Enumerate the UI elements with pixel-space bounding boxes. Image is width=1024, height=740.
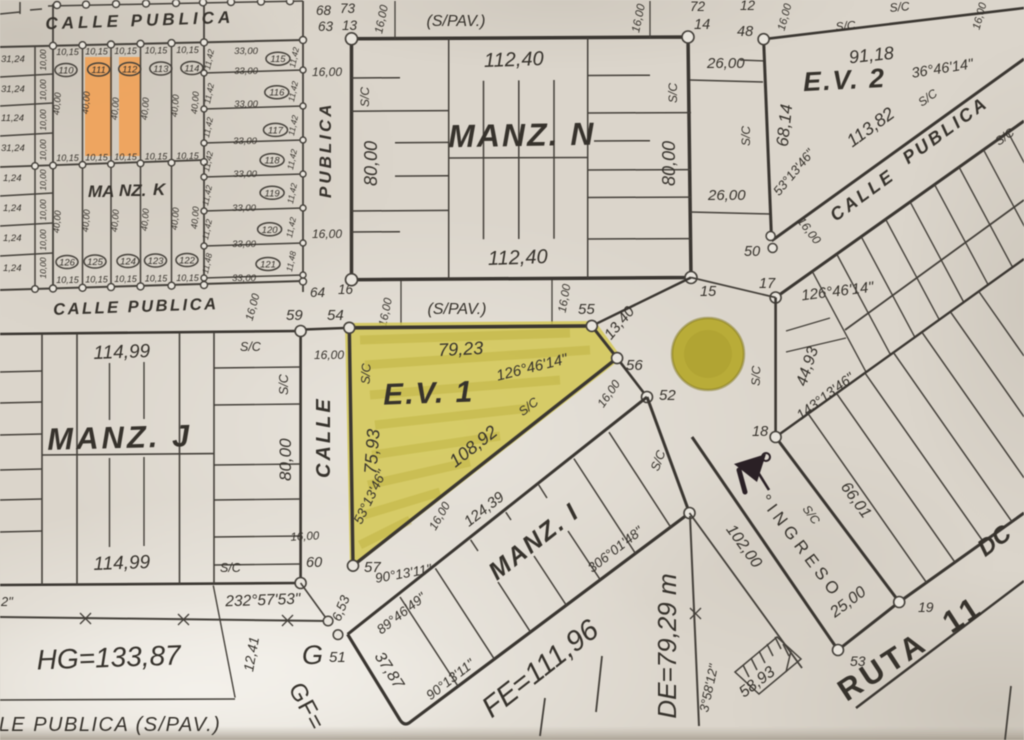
svg-text:13: 13 [342,18,358,33]
svg-text:HG=133,87: HG=133,87 [36,639,182,675]
svg-text:64: 64 [310,285,325,300]
svg-text:14: 14 [694,17,710,33]
svg-text:33,00: 33,00 [234,99,258,110]
svg-text:40,00: 40,00 [139,97,151,120]
svg-text:G: G [302,640,323,670]
svg-text:12: 12 [740,0,756,13]
svg-text:E.V. 1: E.V. 1 [383,375,475,411]
svg-text:NZ.: NZ. [119,181,146,200]
svg-text:18: 18 [752,424,768,440]
svg-text:1,24: 1,24 [3,173,22,184]
svg-text:59: 59 [286,307,303,324]
svg-text:10,15: 10,15 [85,47,109,57]
svg-text:115: 115 [270,54,286,65]
svg-text:117: 117 [268,125,284,136]
svg-text:16,00: 16,00 [290,530,320,544]
svg-text:2": 2" [0,594,14,609]
svg-text:33,00: 33,00 [234,46,258,57]
svg-text:LE PUBLICA (S/PAV.): LE PUBLICA (S/PAV.) [0,714,221,736]
svg-text:S/C: S/C [889,0,911,15]
svg-text:10,15: 10,15 [56,275,80,285]
svg-text:122: 122 [179,256,196,267]
svg-text:S/C: S/C [277,373,291,395]
svg-text:10,00: 10,00 [38,109,48,131]
svg-text:75,93: 75,93 [360,428,383,474]
svg-text:40,00: 40,00 [139,208,151,231]
svg-text:16,00: 16,00 [312,65,342,79]
svg-text:116: 116 [269,88,285,99]
svg-text:S/C: S/C [749,365,764,386]
svg-text:33,00: 33,00 [232,239,256,250]
svg-text:33,00: 33,00 [232,273,256,284]
svg-text:50: 50 [744,244,760,260]
svg-text:10,00: 10,00 [38,257,48,279]
svg-text:40,00: 40,00 [189,206,201,229]
svg-text:10,15: 10,15 [56,47,80,57]
svg-text:112,40: 112,40 [488,246,548,270]
svg-text:80,00: 80,00 [659,141,679,186]
svg-text:10,15: 10,15 [145,46,169,56]
svg-text:S/C: S/C [666,83,680,103]
svg-text:10,15: 10,15 [56,153,80,163]
svg-text:10,15: 10,15 [85,153,109,163]
svg-text:113: 113 [153,64,169,75]
svg-text:114,99: 114,99 [93,341,151,364]
svg-text:31,24: 31,24 [1,84,25,95]
svg-text:112,40: 112,40 [484,48,544,72]
svg-text:10,15: 10,15 [85,275,109,285]
svg-text:40,00: 40,00 [80,209,92,232]
svg-text:80,00: 80,00 [276,438,295,481]
svg-text:10,15: 10,15 [114,274,138,284]
svg-text:10,15: 10,15 [176,273,200,283]
svg-text:40,00: 40,00 [169,94,181,117]
svg-text:119: 119 [265,188,281,199]
svg-text:26,00: 26,00 [707,187,746,204]
svg-text:120: 120 [262,225,279,236]
svg-text:52: 52 [659,387,676,404]
svg-text:S/C: S/C [358,87,372,107]
svg-text:S/C: S/C [240,340,262,354]
svg-text:16,00: 16,00 [314,348,344,362]
svg-text:63: 63 [318,19,334,34]
svg-text:E.V. 2: E.V. 2 [802,63,887,97]
svg-text:40,00: 40,00 [80,91,92,114]
svg-text:112: 112 [122,65,138,76]
svg-text:114,99: 114,99 [93,552,151,575]
svg-text:31,24: 31,24 [1,143,25,154]
svg-text:17: 17 [759,276,776,292]
svg-text:10,15: 10,15 [176,151,200,161]
svg-text:1,24: 1,24 [3,233,22,244]
svg-text:K: K [153,180,167,199]
svg-text:57: 57 [364,559,381,576]
svg-text:26,00: 26,00 [706,55,745,72]
svg-text:15: 15 [700,284,717,300]
svg-text:114: 114 [184,64,199,75]
svg-text:232°57'53": 232°57'53" [224,591,302,611]
svg-text:(S/PAV.): (S/PAV.) [428,301,487,318]
svg-text:10,00: 10,00 [38,199,48,221]
svg-text:10,00: 10,00 [38,169,48,191]
svg-text:33,00: 33,00 [232,203,256,214]
svg-text:MA: MA [88,182,114,201]
svg-text:10,15: 10,15 [114,152,138,162]
svg-text:111: 111 [91,65,105,76]
svg-text:124: 124 [120,257,136,268]
svg-text:40,00: 40,00 [109,209,121,232]
svg-text:123: 123 [148,256,165,267]
svg-text:S/C: S/C [358,362,373,385]
svg-text:33,00: 33,00 [234,66,258,77]
svg-text:72: 72 [690,0,706,14]
svg-text:118: 118 [265,156,281,167]
svg-text:S/C: S/C [220,561,242,575]
svg-text:121: 121 [260,260,276,271]
svg-text:48: 48 [737,24,753,40]
svg-text:68: 68 [316,3,332,18]
svg-text:CALLE: CALLE [313,396,335,478]
svg-text:40,00: 40,00 [189,91,201,114]
svg-text:10,15: 10,15 [145,152,169,162]
svg-text:51: 51 [329,649,346,666]
svg-text:40,00: 40,00 [51,210,63,233]
svg-text:S/C: S/C [739,126,753,146]
svg-text:126: 126 [59,258,76,269]
svg-text:10,15: 10,15 [145,274,169,284]
svg-text:125: 125 [87,257,104,268]
svg-text:16,00: 16,00 [312,227,342,241]
svg-text:10,15: 10,15 [176,45,200,55]
svg-text:56: 56 [626,357,643,374]
svg-text:40,00: 40,00 [51,92,63,115]
svg-text:MANZ. J: MANZ. J [47,418,193,457]
svg-text:S/C: S/C [835,18,857,34]
svg-text:1,24: 1,24 [3,263,22,274]
svg-text:79,23: 79,23 [438,338,484,360]
svg-text:1,24: 1,24 [3,203,22,214]
svg-text:33,00: 33,00 [233,136,257,147]
svg-text:DE=79,29 m: DE=79,29 m [652,573,682,718]
svg-text:110: 110 [58,66,74,77]
svg-text:55: 55 [578,301,595,318]
svg-text:MANZ. N: MANZ. N [448,116,596,155]
svg-text:10,15: 10,15 [114,46,138,56]
svg-text:40,00: 40,00 [169,207,181,230]
svg-text:60: 60 [306,555,322,571]
svg-text:(S/PAV.): (S/PAV.) [427,13,486,30]
svg-text:10,00: 10,00 [38,79,48,101]
svg-text:40,00: 40,00 [109,97,121,120]
svg-text:73: 73 [340,1,356,16]
svg-text:10,00: 10,00 [38,49,48,71]
svg-text:10,00: 10,00 [38,139,48,161]
svg-text:11,24: 11,24 [1,113,24,124]
svg-text:54: 54 [327,307,344,324]
svg-text:31,24: 31,24 [1,54,25,65]
svg-text:80,00: 80,00 [361,141,381,186]
svg-text:PUBLICA: PUBLICA [316,101,335,198]
svg-text:10,00: 10,00 [38,229,48,251]
svg-text:33,00: 33,00 [233,169,257,180]
